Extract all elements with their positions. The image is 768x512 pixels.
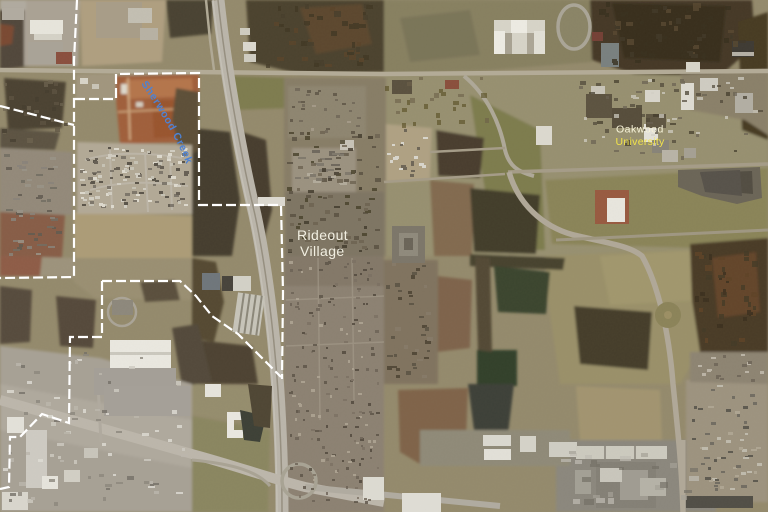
svg-text:Oakwood: Oakwood bbox=[616, 124, 664, 136]
svg-text:University: University bbox=[616, 136, 666, 148]
svg-text:Rideout: Rideout bbox=[297, 227, 348, 243]
svg-text:Village: Village bbox=[300, 243, 345, 259]
